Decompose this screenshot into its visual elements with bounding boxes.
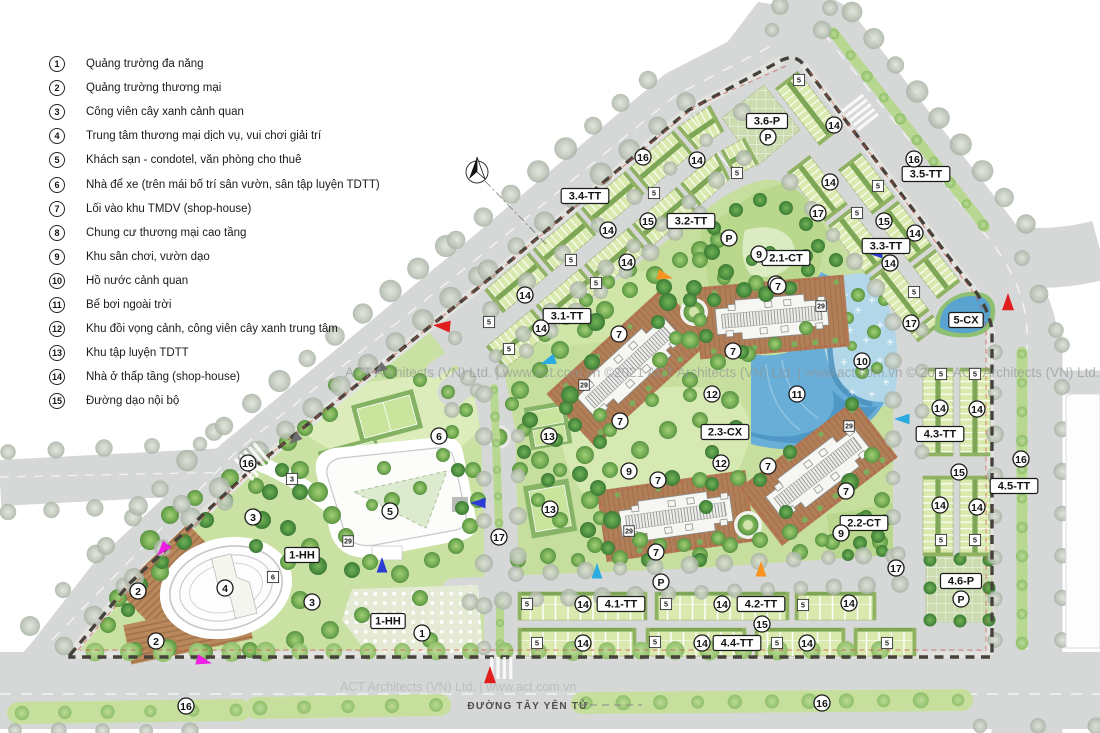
svg-text:5: 5 [653,638,657,647]
svg-text:14: 14 [971,502,983,514]
svg-text:4.4-TT: 4.4-TT [721,638,754,650]
svg-text:ACT Architects (VN) Ltd. | w: ACT Architects (VN) Ltd. | www.act.com.v… [340,680,576,694]
svg-text:ACT Architects (VN) Ltd. | w: ACT Architects (VN) Ltd. | www.act.com.v… [345,365,1100,380]
svg-text:5: 5 [535,639,539,648]
svg-text:13: 13 [543,431,555,443]
svg-text:3.2-TT: 3.2-TT [675,216,708,228]
svg-text:5: 5 [855,209,859,218]
svg-text:11: 11 [791,389,802,401]
svg-text:3.4-TT: 3.4-TT [569,191,602,203]
svg-text:2.3-CX: 2.3-CX [708,427,743,439]
svg-text:29: 29 [845,424,853,431]
svg-text:5: 5 [569,256,573,265]
svg-text:4.3-TT: 4.3-TT [924,429,957,441]
svg-text:5: 5 [801,601,805,610]
svg-text:7: 7 [765,461,771,473]
svg-text:5: 5 [507,345,511,354]
svg-text:17: 17 [890,563,902,575]
svg-text:4: 4 [222,583,228,595]
svg-text:15: 15 [953,467,965,479]
svg-text:3.6-P: 3.6-P [754,116,780,128]
svg-text:1-HH: 1-HH [289,550,315,562]
svg-text:5: 5 [487,318,491,327]
svg-text:5: 5 [876,182,880,191]
svg-text:29: 29 [817,304,825,311]
svg-text:7: 7 [655,475,661,487]
svg-text:14: 14 [843,598,855,610]
svg-text:14: 14 [602,225,614,237]
svg-text:14: 14 [621,257,633,269]
svg-text:5: 5 [775,639,779,648]
svg-text:29: 29 [625,529,633,536]
svg-text:16: 16 [637,152,649,164]
svg-text:16: 16 [816,698,828,710]
svg-text:17: 17 [493,532,505,544]
svg-text:5: 5 [885,639,889,648]
svg-text:17: 17 [812,208,824,220]
svg-text:2: 2 [135,586,141,598]
svg-text:9: 9 [626,466,632,478]
svg-text:5: 5 [387,506,393,518]
svg-text:5: 5 [664,600,668,609]
svg-text:3: 3 [290,475,294,484]
svg-text:5: 5 [973,370,977,379]
svg-text:2.1-CT: 2.1-CT [769,253,803,265]
svg-text:2.2-CT: 2.2-CT [847,518,881,530]
svg-text:5: 5 [735,169,739,178]
svg-text:7: 7 [617,416,623,428]
svg-text:5: 5 [939,536,943,545]
svg-text:4.1-TT: 4.1-TT [605,599,638,611]
svg-text:4.2-TT: 4.2-TT [745,599,778,611]
svg-text:5-CX: 5-CX [953,315,979,327]
svg-text:14: 14 [824,177,836,189]
svg-text:5: 5 [525,600,529,609]
svg-text:16: 16 [908,154,920,166]
svg-text:29: 29 [580,383,588,390]
svg-text:14: 14 [801,638,813,650]
svg-text:3: 3 [309,597,315,609]
svg-text:15: 15 [878,216,890,228]
svg-text:13: 13 [544,504,556,516]
svg-text:1-HH: 1-HH [375,616,401,628]
svg-text:14: 14 [691,155,703,167]
svg-text:14: 14 [884,258,896,270]
svg-text:14: 14 [934,500,946,512]
svg-text:3.5-TT: 3.5-TT [910,169,943,181]
svg-text:5: 5 [797,76,801,85]
svg-text:14: 14 [577,638,589,650]
svg-text:7: 7 [775,281,781,293]
svg-text:3.3-TT: 3.3-TT [870,241,903,253]
svg-text:14: 14 [577,599,589,611]
svg-text:7: 7 [653,547,659,559]
svg-text:7: 7 [616,329,622,341]
svg-text:12: 12 [706,389,718,401]
svg-text:16: 16 [180,701,192,713]
svg-text:5: 5 [652,189,656,198]
svg-text:4.5-TT: 4.5-TT [998,481,1031,493]
svg-text:16: 16 [242,458,254,470]
svg-text:15: 15 [642,216,654,228]
svg-text:14: 14 [909,228,921,240]
svg-text:P: P [764,132,771,144]
svg-text:14: 14 [519,290,531,302]
svg-text:P: P [957,594,964,606]
svg-text:6: 6 [436,431,442,443]
svg-text:17: 17 [905,318,917,330]
svg-text:14: 14 [535,323,547,335]
svg-text:9: 9 [838,528,844,540]
svg-text:ĐƯỜNG TÂY YÊN TỬ: ĐƯỜNG TÂY YÊN TỬ [467,699,588,712]
svg-text:7: 7 [730,346,736,358]
svg-text:14: 14 [828,120,840,132]
svg-text:12: 12 [715,458,727,470]
svg-text:7: 7 [843,486,849,498]
svg-text:1: 1 [419,628,425,640]
svg-text:5: 5 [973,536,977,545]
svg-text:14: 14 [934,403,946,415]
svg-text:3.1-TT: 3.1-TT [551,311,584,323]
svg-text:15: 15 [756,619,768,631]
svg-text:16: 16 [1015,454,1027,466]
svg-text:29: 29 [344,539,352,546]
svg-text:5: 5 [912,288,916,297]
svg-text:5: 5 [939,370,943,379]
svg-text:3: 3 [250,512,256,524]
svg-text:6: 6 [271,573,275,582]
svg-text:4.6-P: 4.6-P [948,576,974,588]
svg-text:5: 5 [594,279,598,288]
svg-text:2: 2 [153,636,159,648]
svg-text:P: P [725,233,732,245]
svg-text:14: 14 [971,404,983,416]
svg-text:9: 9 [756,249,762,261]
svg-text:14: 14 [696,638,708,650]
svg-text:10: 10 [856,356,868,368]
svg-text:14: 14 [716,599,728,611]
svg-text:P: P [657,577,664,589]
